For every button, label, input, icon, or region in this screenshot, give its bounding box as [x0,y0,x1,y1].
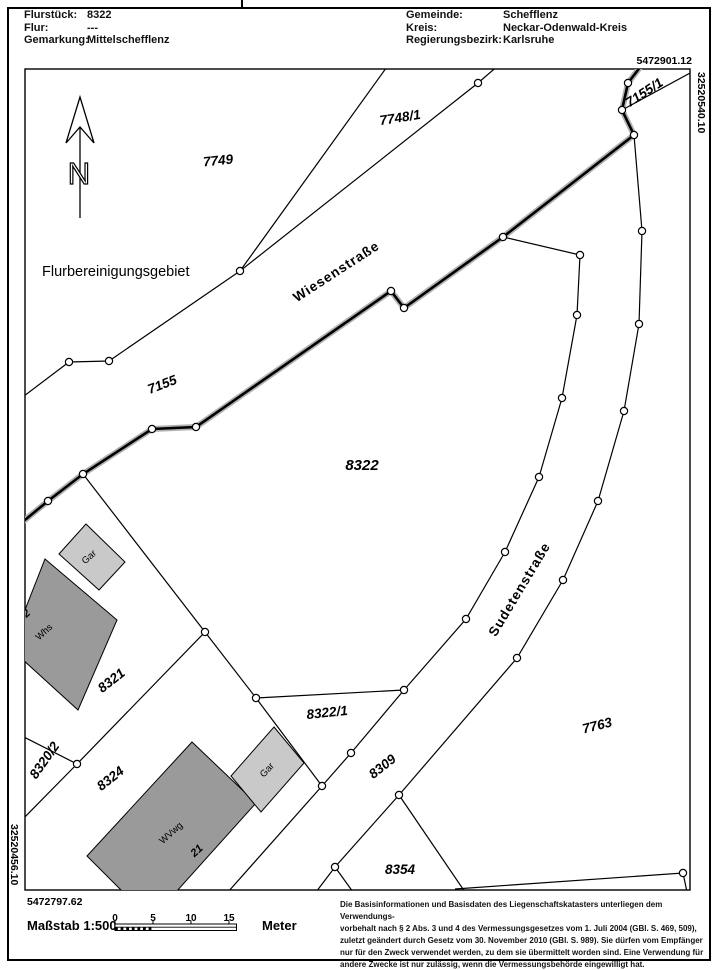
coord-right-easting: 32520540.10 [695,72,707,133]
legal-line: andere Zwecke ist nur zulässig, wenn die… [340,959,706,970]
scale-unit: Meter [262,918,297,933]
legal-line: vorbehalt nach § 2 Abs. 3 und 4 des Verm… [340,923,706,935]
legal-line: nur für den Zweck verwendet werden, zu d… [340,947,706,959]
legal-notice: Die Basisinformationen und Basisdaten de… [340,899,706,970]
coord-top-northing: 5472901.12 [637,55,693,67]
cadastral-map-page: { "header": { "left": [ {"label": "Flurs… [0,0,719,968]
scale-bar: Maßstab 1:500 0 5 10 15 Meter [27,913,297,933]
north-arrow-letter: N [68,156,90,191]
parcel-label-8354: 8354 [385,862,416,877]
map-canvas: 5472901.12 32520540.10 32520456.10 54727… [0,0,719,968]
parcel-label-7749: 7749 [202,151,234,169]
coord-bottom-northing: 5472797.62 [27,896,83,908]
map-frame [25,69,690,890]
legal-line: zuletzt geändert durch Gesetz vom 30. No… [340,935,706,947]
parcel-label-8322: 8322 [345,457,379,474]
legal-line: Die Basisinformationen und Basisdaten de… [340,899,706,923]
region-label: Flurbereinigungsgebiet [42,264,190,280]
coord-left-easting: 32520456.10 [8,824,20,885]
scale-label: Maßstab 1:500 [27,918,117,933]
